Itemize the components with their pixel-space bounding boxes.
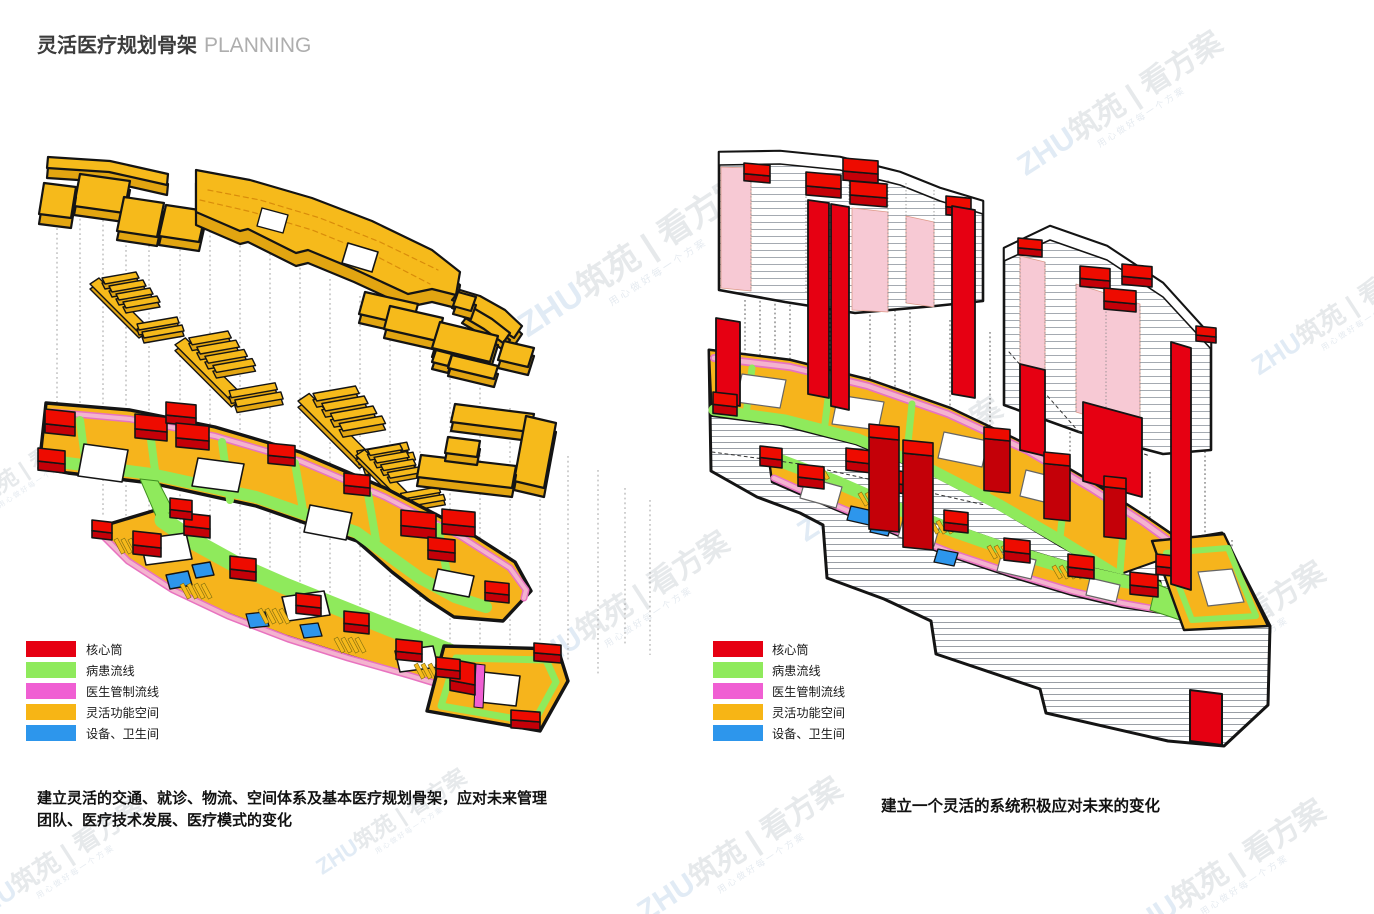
svg-text:医生管制流线: 医生管制流线: [86, 684, 159, 699]
svg-text:PLANNING: PLANNING: [204, 34, 311, 57]
svg-text:建立一个灵活的系统积极应对未来的变化: 建立一个灵活的系统积极应对未来的变化: [881, 796, 1161, 815]
svg-text:灵活功能空间: 灵活功能空间: [772, 706, 845, 720]
svg-text:团队、医疗技术发展、医疗模式的变化: 团队、医疗技术发展、医疗模式的变化: [37, 811, 292, 829]
svg-text:设备、卫生间: 设备、卫生间: [86, 727, 159, 741]
svg-text:病患流线: 病患流线: [86, 663, 135, 678]
svg-text:灵活医疗规划骨架: 灵活医疗规划骨架: [37, 33, 197, 57]
svg-text:设备、卫生间: 设备、卫生间: [772, 727, 845, 741]
svg-text:核心筒: 核心筒: [86, 642, 123, 657]
svg-text:灵活功能空间: 灵活功能空间: [86, 706, 159, 720]
svg-text:医生管制流线: 医生管制流线: [772, 684, 845, 699]
svg-text:建立灵活的交通、就诊、物流、空间体系及基本医疗规划骨架，应对: 建立灵活的交通、就诊、物流、空间体系及基本医疗规划骨架，应对未来管理: [37, 789, 547, 807]
svg-text:病患流线: 病患流线: [772, 663, 821, 678]
svg-text:核心筒: 核心筒: [772, 642, 809, 657]
